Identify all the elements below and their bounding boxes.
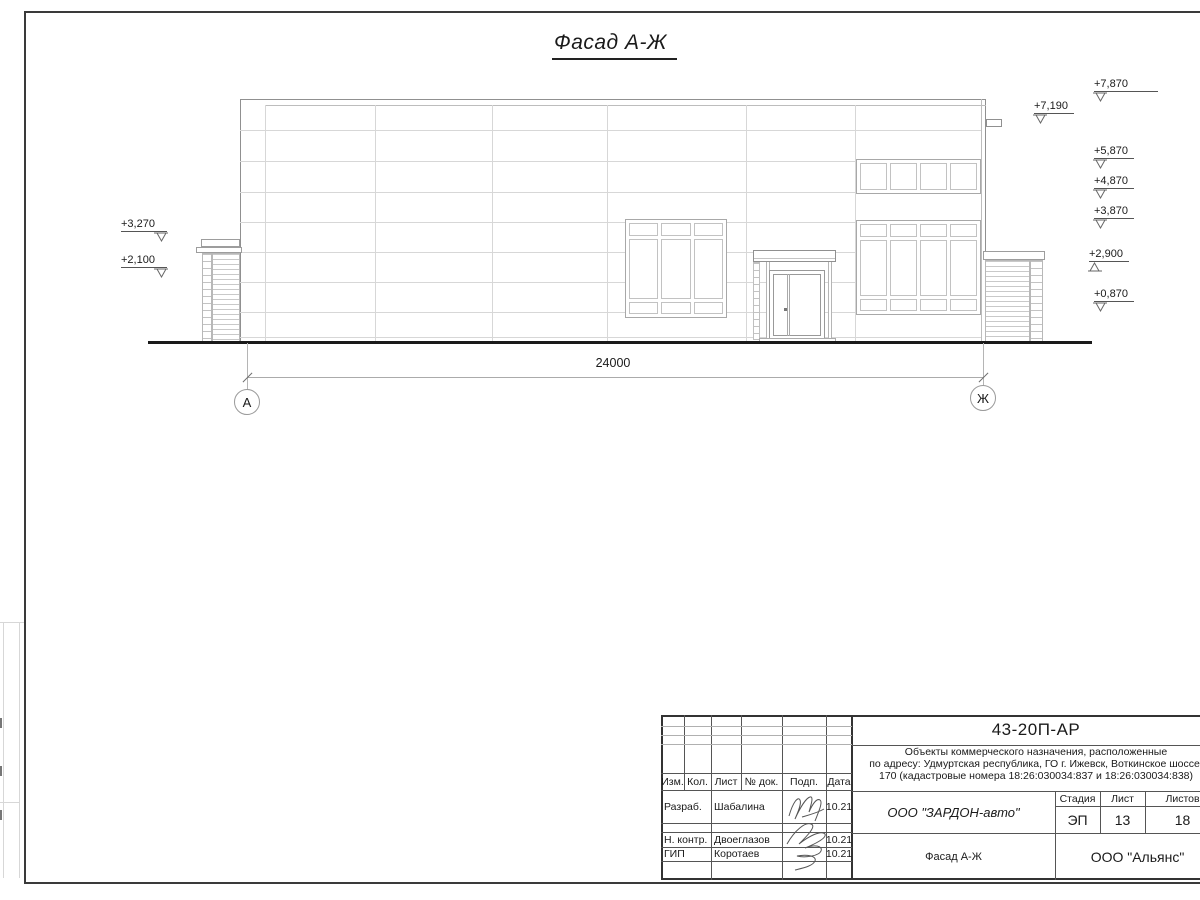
parapet-line [265, 105, 986, 106]
doc-number: 43-20П-АР [852, 715, 1200, 745]
elevation-arrow-icon [1092, 159, 1108, 169]
title-block-line [661, 744, 852, 745]
role-gip: ГИП [661, 847, 714, 861]
door-leaf-divider [787, 274, 790, 336]
col-header-podp: Подп. [782, 773, 826, 790]
elevation-value: +4,870 [1094, 175, 1134, 189]
elevation-mark: +2,900 [1089, 248, 1129, 262]
project-description: Объекты коммерческого назначения, распол… [852, 746, 1200, 791]
title-block-line [661, 735, 852, 736]
elevation-arrow-icon [153, 268, 169, 278]
window-pane [890, 163, 917, 190]
window-pane [920, 299, 947, 311]
left-wing-post [202, 253, 212, 342]
elevation-arrow-icon [1032, 114, 1048, 124]
left-wing-cap [201, 239, 240, 247]
margin-label-fragment [0, 766, 2, 776]
elevation-mark: +2,100 [121, 254, 167, 268]
window-pane [920, 240, 947, 296]
window-pane [890, 224, 917, 237]
right-wing-cap [983, 251, 1045, 260]
elevation-value: +7,870 [1094, 78, 1158, 92]
panel-joint-line [240, 130, 981, 131]
role-ncontr: Н. контр. [661, 832, 714, 847]
sheet-label: Лист [1100, 791, 1145, 806]
left-wing-louver [212, 253, 240, 342]
window-pane [920, 163, 947, 190]
role-developer: Разраб. [661, 790, 714, 823]
project-description-line1: Объекты коммерческого назначения, распол… [852, 746, 1200, 758]
col-header-data: Дата [826, 773, 852, 790]
dimension-label: 24000 [583, 356, 643, 370]
panel-joint-line [607, 105, 608, 341]
project-description-line2: по адресу: Удмуртская республика, ГО г. … [852, 758, 1200, 770]
sheets-value: 18 [1145, 806, 1200, 833]
panel-joint-line [265, 105, 266, 341]
elevation-mark: +7,870 [1094, 78, 1158, 92]
window-pane [694, 223, 723, 236]
elevation-arrow-icon [1092, 92, 1108, 102]
elevation-mark: +0,870 [1094, 288, 1134, 302]
ground-line [148, 341, 1092, 344]
parapet-flag [986, 119, 1002, 127]
window-pane [950, 299, 977, 311]
clerestory-window [856, 159, 981, 194]
window-pane [890, 240, 917, 296]
elevation-value: +5,870 [1094, 145, 1134, 159]
elevation-value: +2,900 [1089, 248, 1129, 262]
left-window [625, 219, 727, 318]
margin-strip-line [19, 622, 20, 878]
date-ncontr: 10.21 [826, 832, 852, 847]
elevation-mark: +4,870 [1094, 175, 1134, 189]
elevation-value: +3,270 [121, 218, 167, 232]
elevation-arrow-icon [1092, 302, 1108, 312]
elevation-value: +3,870 [1094, 205, 1134, 219]
elevation-value: +0,870 [1094, 288, 1134, 302]
window-pane [950, 163, 977, 190]
elevation-mark: +5,870 [1094, 145, 1134, 159]
window-pane [694, 239, 723, 299]
right-window [856, 220, 981, 315]
door-handle [784, 308, 787, 311]
window-pane [661, 223, 690, 236]
panel-joint-line [240, 337, 981, 338]
elevation-mark: +7,190 [1034, 100, 1074, 114]
right-wing-post [1030, 260, 1043, 342]
sheet-value: 13 [1100, 806, 1145, 833]
window-pane [629, 239, 658, 299]
right-wing-louver [985, 260, 1030, 342]
elevation-mark: +3,270 [121, 218, 167, 232]
title-block-line [661, 726, 852, 727]
window-pane [860, 224, 887, 237]
margin-label-fragment [0, 810, 2, 820]
margin-strip-line [0, 802, 19, 803]
col-header-list: Лист [711, 773, 741, 790]
name-developer: Шабалина [711, 790, 785, 823]
window-pane [890, 299, 917, 311]
stage-value: ЭП [1055, 806, 1100, 833]
window-pane [661, 302, 690, 314]
drawing-sheet: { "drawing": { "title": "Фасад А-Ж", "di… [0, 0, 1200, 900]
window-pane [860, 299, 887, 311]
entrance-canopy [753, 250, 836, 262]
downpipe [753, 262, 760, 340]
contractor-name: ООО "Альянс" [1055, 833, 1200, 880]
margin-strip-line [3, 622, 4, 878]
date-developer: 10.21 [826, 790, 852, 823]
margin-label-fragment [0, 718, 2, 728]
window-pane [694, 302, 723, 314]
elevation-arrow-icon [1087, 262, 1103, 272]
drawing-name: Фасад А-Ж [852, 833, 1055, 880]
signature-ncontr-gip [781, 818, 829, 874]
pilaster-line [981, 99, 982, 342]
col-header-kol: Кол. [684, 773, 711, 790]
col-header-doc: № док. [741, 773, 782, 790]
elevation-arrow-icon [1092, 219, 1108, 229]
date-gip: 10.21 [826, 847, 852, 861]
stage-label: Стадия [1055, 791, 1100, 806]
window-pane [860, 163, 887, 190]
window-pane [629, 302, 658, 314]
elevation-value: +7,190 [1034, 100, 1074, 114]
dimension-line [247, 377, 983, 378]
elevation-arrow-icon [1092, 189, 1108, 199]
name-gip: Коротаев [711, 847, 785, 861]
project-description-line3: 170 (кадастровые номера 18:26:030034:837… [852, 770, 1200, 782]
elevation-mark: +3,870 [1094, 205, 1134, 219]
col-header-izm: Изм. [661, 773, 684, 790]
window-pane [661, 239, 690, 299]
window-pane [950, 240, 977, 296]
window-pane [629, 223, 658, 236]
margin-strip-line [0, 622, 24, 623]
name-ncontr: Двоеглазов [711, 832, 785, 847]
window-pane [920, 224, 947, 237]
drawing-title: Фасад А-Ж [552, 31, 677, 60]
company-name: ООО "ЗАРДОН-авто" [852, 791, 1055, 833]
panel-joint-line [492, 105, 493, 341]
sheets-label: Листов [1145, 791, 1200, 806]
door-leaves [773, 274, 821, 336]
extension-line [983, 343, 984, 386]
window-pane [950, 224, 977, 237]
axis-bubble-zh: Ж [970, 385, 996, 411]
panel-joint-line [375, 105, 376, 341]
panel-joint-line [746, 105, 747, 341]
axis-bubble-a: А [234, 389, 260, 415]
elevation-value: +2,100 [121, 254, 167, 268]
door-jamb [828, 262, 832, 340]
window-pane [860, 240, 887, 296]
elevation-arrow-icon [153, 232, 169, 242]
extension-line [247, 343, 248, 390]
